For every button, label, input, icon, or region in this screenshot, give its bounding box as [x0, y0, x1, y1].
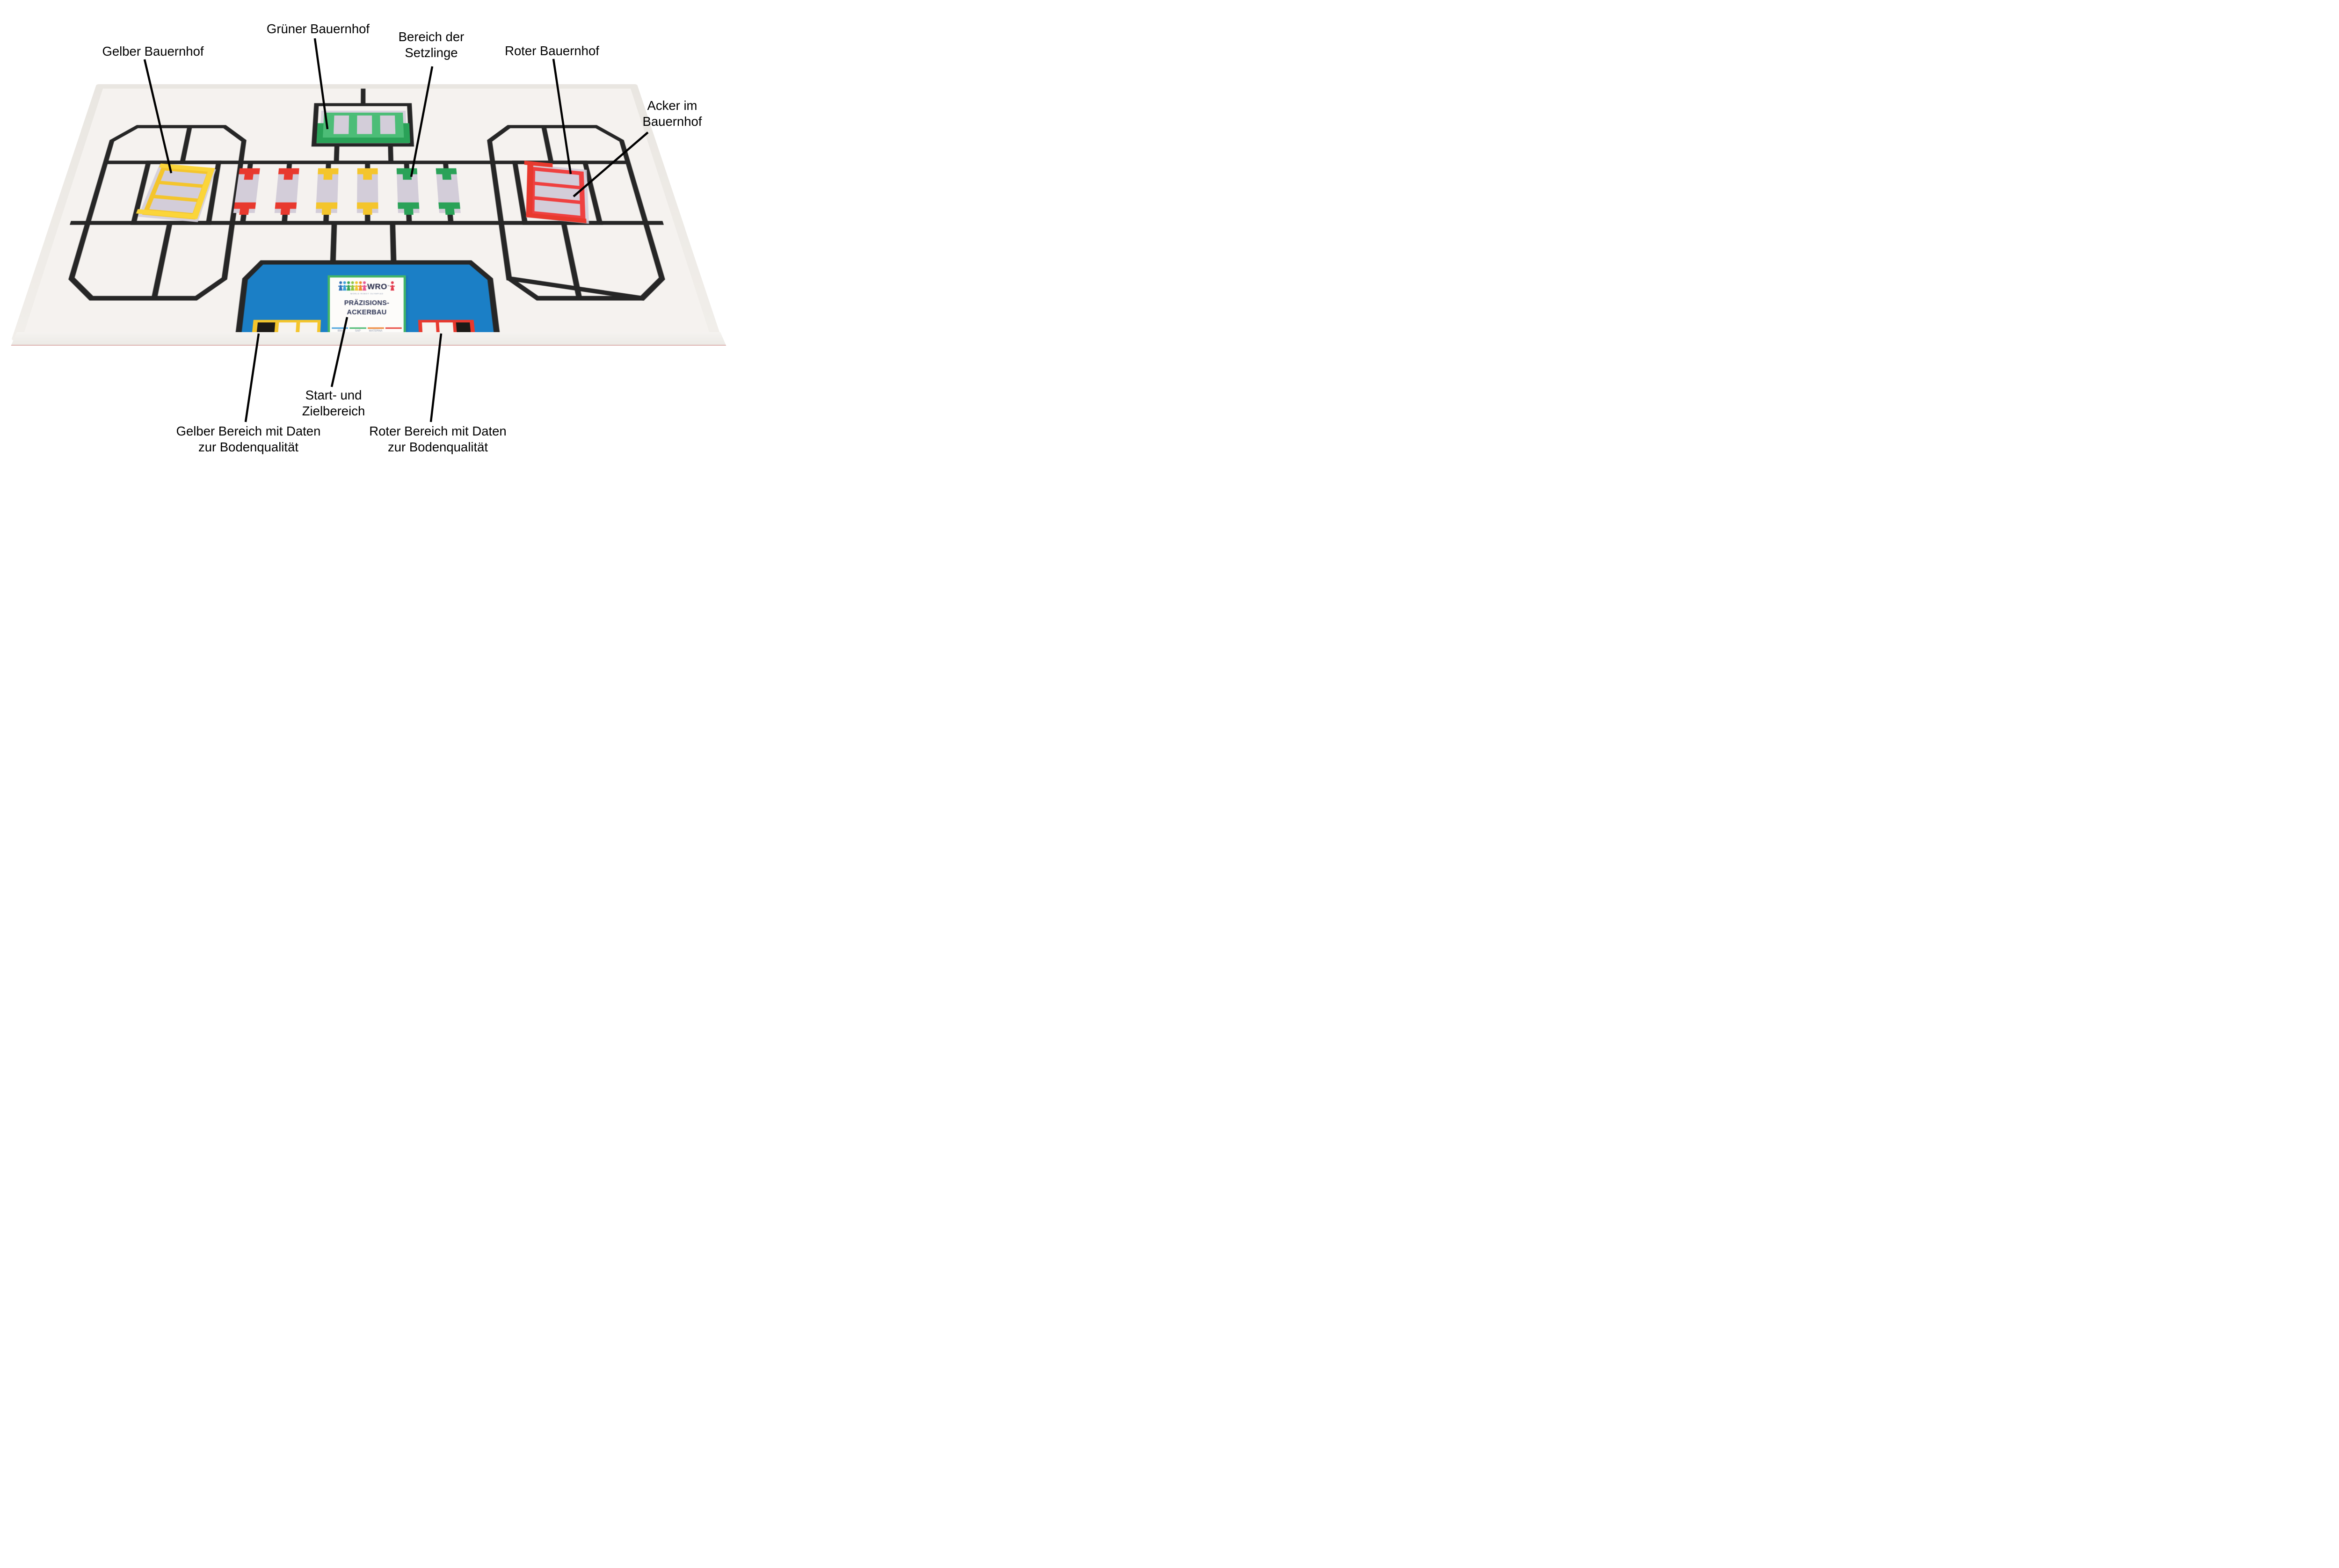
- label-gruener-bauernhof: Grüner Bauernhof: [267, 21, 370, 37]
- sponsor-strip: IBM SAP MATERNA: [332, 327, 401, 333]
- seedling-top-stem: [244, 174, 253, 180]
- seedling-top-bar: [239, 168, 260, 174]
- competition-table: WRO™ WORLD ROBOT OLYMPIAD PRÄZISIONS- AC…: [11, 84, 722, 341]
- sponsor-other: [385, 327, 402, 333]
- wro-red-person-icon: [390, 281, 395, 292]
- seedling-top-stem: [403, 174, 412, 180]
- wro-subtitle: WORLD ROBOT OLYMPIAD: [350, 293, 384, 295]
- sponsor-ibm: IBM: [332, 327, 348, 333]
- label-gelber-bauernhof: Gelber Bauernhof: [102, 44, 203, 59]
- seedling-bottom-bar: [234, 203, 256, 209]
- green-field-2: [357, 116, 372, 134]
- wro-sign: WRO™ WORLD ROBOT OLYMPIAD PRÄZISIONS- AC…: [327, 275, 406, 337]
- seedling-bottom-stem: [281, 209, 290, 215]
- seedling-top-stem: [363, 174, 372, 180]
- seedling-bottom-stem: [239, 209, 249, 215]
- sponsor-materna: MATERNA: [367, 327, 384, 333]
- seedling-bottom-bar: [438, 203, 460, 209]
- seedling-bottom-bar: [275, 203, 297, 209]
- seedling-top-bar: [278, 168, 299, 174]
- sponsor-sap: SAP: [349, 327, 366, 333]
- red-farm: [523, 161, 589, 224]
- label-start-ziel: Start- und Zielbereich: [302, 387, 365, 419]
- seedling-top-bar: [318, 168, 338, 174]
- label-acker-im-bauernhof: Acker im Bauernhof: [643, 98, 702, 130]
- green-field-3: [380, 116, 395, 134]
- line-gelber-bereich: [246, 334, 259, 422]
- sign-title-line2: ACKERBAU: [344, 308, 389, 317]
- seedling-bottom-bar: [357, 203, 378, 209]
- wro-logo: WRO™: [338, 281, 395, 292]
- label-roter-bauernhof: Roter Bauernhof: [505, 43, 599, 59]
- seedling-bottom-stem: [363, 209, 372, 215]
- seedling-top-stem: [283, 174, 293, 180]
- label-bereich-setzlinge: Bereich der Setzlinge: [399, 29, 465, 61]
- annotated-wro-field-page: { "annotations": { "gelber_bauernhof": {…: [0, 0, 734, 474]
- green-farm: [316, 111, 410, 143]
- seedling-bottom-bar: [316, 203, 337, 209]
- green-field-1: [334, 116, 349, 134]
- seedling-green-5: [397, 168, 420, 215]
- seedling-top-bar: [397, 168, 417, 174]
- wro-people-icon: [338, 281, 367, 292]
- label-roter-bereich: Roter Bereich mit Daten zur Bodenqualitä…: [369, 423, 506, 455]
- seedling-yellow-3: [316, 168, 339, 215]
- seedling-bottom-stem: [322, 209, 331, 215]
- seedling-top-stem: [323, 174, 332, 180]
- label-gelber-bereich: Gelber Bereich mit Daten zur Bodenqualit…: [176, 423, 321, 455]
- seedling-bottom-stem: [404, 209, 414, 215]
- seedling-bottom-stem: [445, 209, 454, 215]
- table-front-edge: [0, 332, 734, 346]
- seedling-bottom-bar: [398, 203, 419, 209]
- wro-logo-text: WRO: [367, 283, 387, 290]
- line-roter-bereich: [431, 334, 441, 422]
- seedling-top-bar: [436, 168, 457, 174]
- seedling-top-bar: [357, 168, 378, 174]
- seedling-yellow-4: [357, 168, 378, 215]
- seedling-top-stem: [442, 174, 451, 180]
- sign-title-line1: PRÄZISIONS-: [344, 299, 389, 308]
- sign-title: PRÄZISIONS- ACKERBAU: [344, 299, 389, 317]
